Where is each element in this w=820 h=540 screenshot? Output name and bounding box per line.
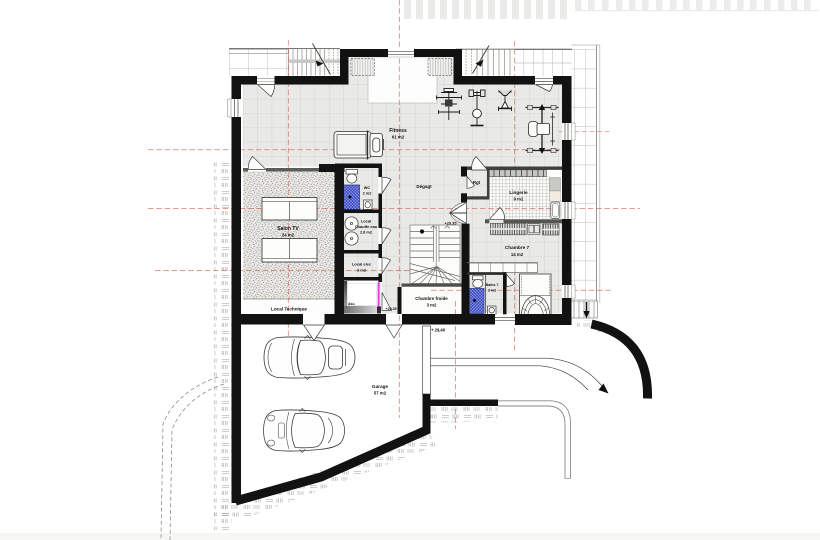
svg-text:3 m2: 3 m2 — [488, 289, 496, 293]
svg-text:Local Technique: Local Technique — [271, 307, 307, 312]
svg-text:Lingerie: Lingerie — [509, 190, 528, 195]
svg-text:Salon TV: Salon TV — [277, 226, 299, 232]
svg-text:Asc.: Asc. — [348, 302, 355, 306]
svg-text:+ 29,40: + 29,40 — [431, 328, 446, 333]
svg-text:61 m2: 61 m2 — [392, 135, 405, 140]
svg-text:Chambre froide: Chambre froide — [415, 296, 448, 301]
svg-text:+29.35: +29.35 — [386, 307, 397, 311]
svg-text:Bains 7: Bains 7 — [485, 283, 498, 287]
svg-text:Dégagt: Dégagt — [416, 184, 432, 189]
svg-text:Rgt: Rgt — [473, 180, 481, 185]
svg-text:57 m2: 57 m2 — [374, 391, 387, 396]
svg-text:Garage: Garage — [372, 384, 389, 389]
svg-text:Local elec: Local elec — [352, 262, 372, 267]
svg-text:3 m2: 3 m2 — [427, 303, 437, 308]
svg-text:Local: Local — [361, 219, 371, 224]
svg-text:2 m2: 2 m2 — [363, 191, 373, 196]
svg-text:2.8 m2: 2.8 m2 — [360, 230, 373, 235]
svg-text:Fitness: Fitness — [389, 128, 407, 134]
svg-text:9 m2: 9 m2 — [514, 197, 524, 202]
svg-text:+29.35: +29.35 — [445, 220, 458, 225]
svg-text:Chauffe eau: Chauffe eau — [355, 224, 378, 229]
svg-text:14 m2: 14 m2 — [511, 252, 524, 257]
svg-text:2 m2: 2 m2 — [357, 268, 367, 273]
svg-text:WC: WC — [364, 185, 371, 190]
svg-text:24 m2: 24 m2 — [282, 233, 295, 238]
svg-text:Chambre 7: Chambre 7 — [505, 245, 530, 250]
